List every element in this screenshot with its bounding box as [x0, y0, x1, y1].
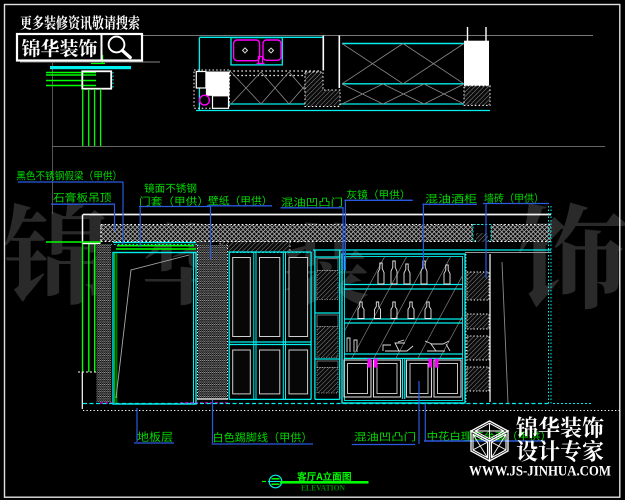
- svg-text:白色踢脚线（甲供）: 白色踢脚线（甲供）: [213, 430, 313, 446]
- svg-text:客厅A立面图: 客厅A立面图: [297, 469, 352, 483]
- svg-text:黑色不锈钢假梁（甲供）: 黑色不锈钢假梁（甲供）: [16, 168, 122, 183]
- svg-text:ELEVATION: ELEVATION: [301, 484, 345, 493]
- svg-text:更多装修资讯敬请搜索: 更多装修资讯敬请搜索: [20, 12, 140, 34]
- svg-text:设计专家: 设计专家: [516, 434, 604, 467]
- svg-text:WWW.JS-JINHUA.COM: WWW.JS-JINHUA.COM: [469, 464, 611, 480]
- svg-text:锦华装饰: 锦华装饰: [22, 33, 98, 61]
- svg-text:混油凹凸门: 混油凹凸门: [354, 429, 416, 444]
- svg-text:石膏板吊顶: 石膏板吊顶: [53, 190, 112, 206]
